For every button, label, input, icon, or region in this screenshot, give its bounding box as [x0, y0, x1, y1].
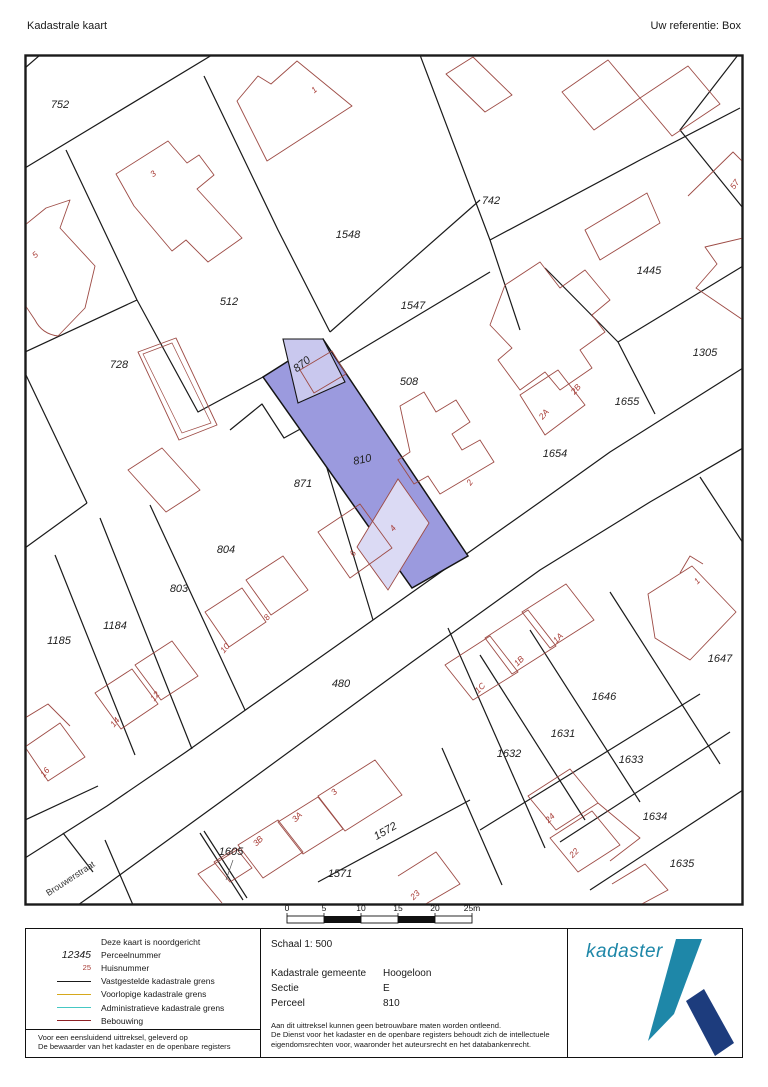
parcel-label-742: 742 — [482, 195, 500, 207]
disclaimer-line1: Aan dit uittreksel kunnen geen betrouwba… — [271, 1021, 550, 1030]
legend-provisional-label: Voorlopige kadastrale grens — [101, 989, 206, 999]
scale-tick-5: 5 — [322, 903, 327, 913]
legend-row-parcelnumber: 12345 Perceelnummer — [26, 948, 260, 961]
legend-administrative-label: Administratieve kadastrale grens — [101, 1003, 224, 1013]
buildings-swatch — [57, 1020, 91, 1021]
gemeente-value: Hoogeloon — [383, 968, 431, 979]
provisional-boundary-swatch — [57, 994, 91, 995]
parcel-label-1185: 1185 — [47, 635, 72, 647]
administrative-boundary-swatch — [57, 1007, 91, 1008]
legend-footnote-line1: Voor een eensluidend uittreksel, gelever… — [38, 1033, 260, 1042]
legend-north-note: Deze kaart is noordgericht — [101, 937, 200, 947]
parcel-label-1547: 1547 — [401, 300, 426, 312]
scale-tick-10: 10 — [356, 903, 366, 913]
scale-tick-0: 0 — [285, 903, 290, 913]
perceel-value: 810 — [383, 998, 400, 1009]
parcel-label-752: 752 — [51, 99, 69, 111]
detail-row-gemeente: Kadastrale gemeente Hoogeloon — [271, 968, 567, 979]
disclaimer-line3: eigendomsrechten voor, waaronder het aut… — [271, 1040, 550, 1049]
parcel-label-480: 480 — [332, 678, 351, 690]
cadastral-extract-page: Kadastrale kaart Uw referentie: Box — [0, 0, 768, 1087]
parcel-label-1548: 1548 — [336, 229, 361, 241]
parcel-number-sample: 12345 — [26, 949, 101, 961]
details-panel: Schaal 1: 500 Kadastrale gemeente Hoogel… — [261, 929, 568, 1057]
parcel-label-1184: 1184 — [103, 620, 127, 632]
parcel-label-871: 871 — [294, 478, 312, 490]
parcel-label-803: 803 — [170, 583, 189, 595]
parcel-label-1646: 1646 — [592, 691, 617, 703]
house-number-sample: 25 — [26, 963, 101, 972]
scale-text: Schaal 1: 500 — [271, 939, 567, 950]
sectie-label: Sectie — [271, 983, 383, 994]
legend-footnote: Voor een eensluidend uittreksel, gelever… — [26, 1029, 260, 1057]
scale-tick-15: 15 — [393, 903, 403, 913]
gemeente-label: Kadastrale gemeente — [271, 968, 383, 979]
legend-row-north: Deze kaart is noordgericht — [26, 935, 260, 948]
legend-footnote-line2: De bewaarder van het kadaster en de open… — [38, 1042, 260, 1051]
footer-panel: Deze kaart is noordgericht 12345 Perceel… — [25, 928, 743, 1058]
parcel-label-1647: 1647 — [708, 653, 733, 665]
legend-house-label: Huisnummer — [101, 963, 149, 973]
legend-row-administrative-boundary: Administratieve kadastrale grens — [26, 1001, 260, 1014]
parcel-label-1633: 1633 — [619, 754, 644, 766]
detail-row-perceel: Perceel 810 — [271, 998, 567, 1009]
parcel-label-1571: 1571 — [328, 868, 352, 880]
legend-established-label: Vastgestelde kadastrale grens — [101, 976, 215, 986]
cadastral-map: 752 1548 742 1445 512 1547 1305 728 870 … — [0, 0, 768, 1087]
parcel-label-1305: 1305 — [693, 347, 718, 359]
detail-row-sectie: Sectie E — [271, 983, 567, 994]
disclaimer: Aan dit uittreksel kunnen geen betrouwba… — [271, 1021, 550, 1049]
parcel-label-1654: 1654 — [543, 448, 567, 460]
sectie-value: E — [383, 983, 390, 994]
scale-bar: 0 5 10 15 20 25m — [285, 903, 481, 923]
parcel-label-1634: 1634 — [643, 811, 667, 823]
parcel-label-1631: 1631 — [551, 728, 575, 740]
parcel-label-512: 512 — [220, 296, 238, 308]
kadaster-logo-icon — [568, 929, 744, 1056]
perceel-label: Perceel — [271, 998, 383, 1009]
parcel-label-1632: 1632 — [497, 748, 521, 760]
parcel-label-508: 508 — [400, 376, 419, 388]
disclaimer-line2: De Dienst voor het kadaster en de openba… — [271, 1030, 550, 1039]
parcel-label-804: 804 — [217, 544, 235, 556]
parcel-label-728: 728 — [110, 359, 129, 371]
legend-panel: Deze kaart is noordgericht 12345 Perceel… — [26, 929, 261, 1057]
legend-row-provisional-boundary: Voorlopige kadastrale grens — [26, 988, 260, 1001]
scale-tick-25m: 25m — [464, 903, 481, 913]
legend-row-housenumber: 25 Huisnummer — [26, 961, 260, 974]
legend-buildings-label: Bebouwing — [101, 1016, 143, 1026]
established-boundary-swatch — [57, 981, 91, 982]
parcel-label-1445: 1445 — [637, 265, 662, 277]
legend-row-buildings: Bebouwing — [26, 1014, 260, 1027]
legend-parcel-label: Perceelnummer — [101, 950, 161, 960]
kadaster-logo-panel: kadaster — [568, 929, 742, 1057]
scale-tick-20: 20 — [430, 903, 440, 913]
legend-row-established-boundary: Vastgestelde kadastrale grens — [26, 975, 260, 988]
parcel-label-1635: 1635 — [670, 858, 695, 870]
parcel-label-1655: 1655 — [615, 396, 640, 408]
parcel-label-1605: 1605 — [219, 846, 244, 858]
